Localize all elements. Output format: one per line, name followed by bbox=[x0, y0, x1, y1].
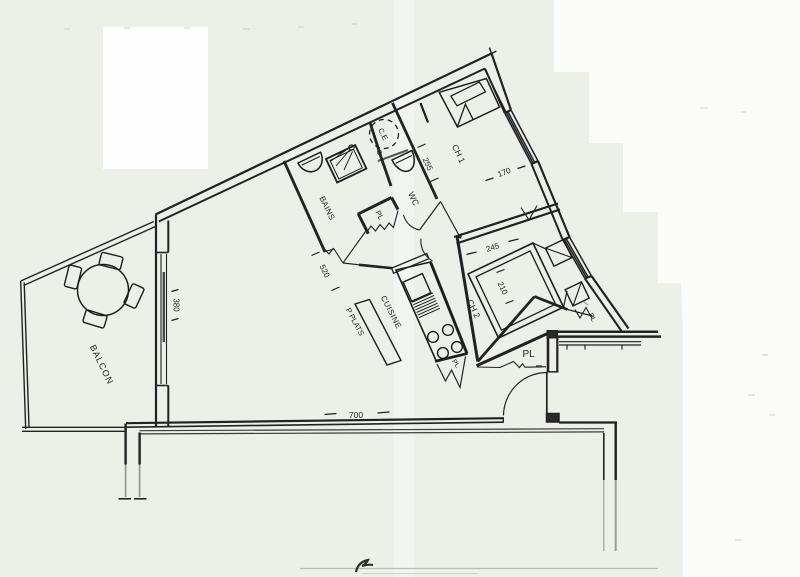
svg-text:PL: PL bbox=[523, 349, 536, 360]
svg-text:380: 380 bbox=[172, 298, 181, 312]
svg-text:700: 700 bbox=[349, 410, 363, 420]
